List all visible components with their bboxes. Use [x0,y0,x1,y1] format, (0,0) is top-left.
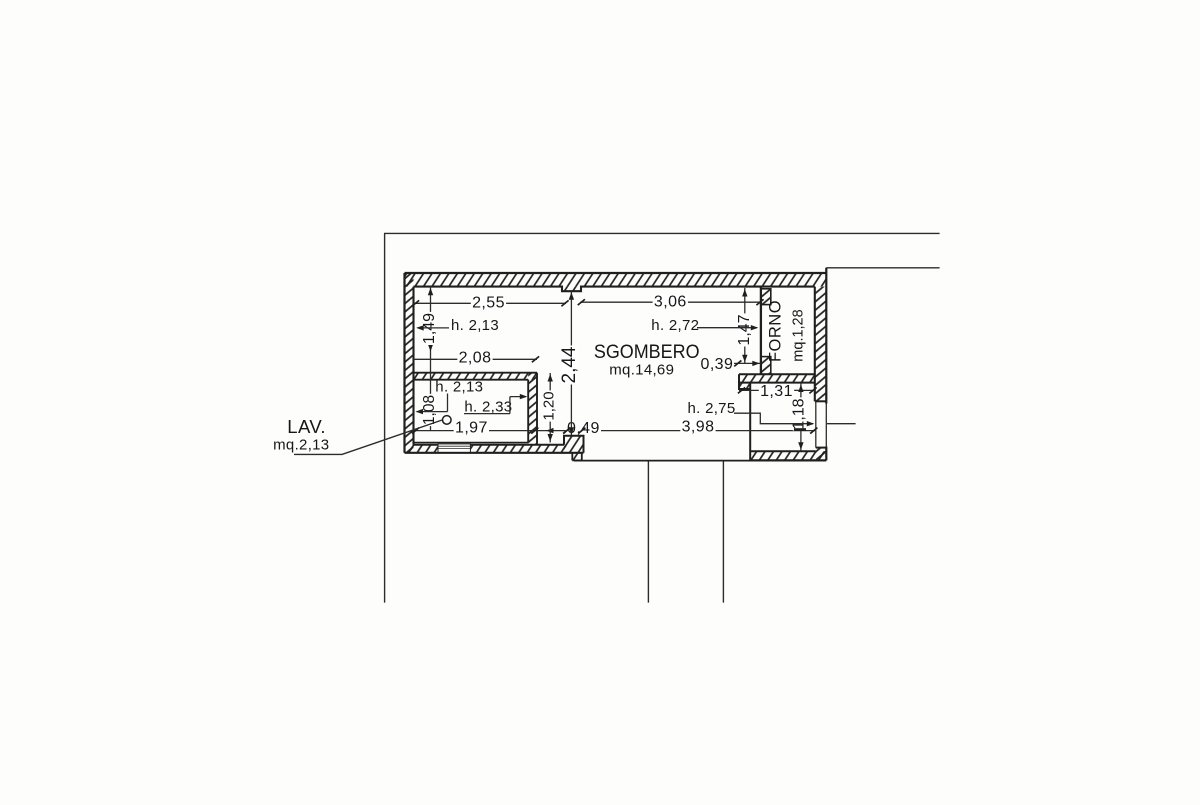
svg-text:2,55: 2,55 [472,295,505,312]
svg-text:h. 2,72: h. 2,72 [651,317,699,334]
svg-text:mq.14,69: mq.14,69 [609,362,674,379]
svg-text:FORNO: FORNO [767,300,785,362]
svg-text:1,18: 1,18 [791,398,808,429]
svg-text:2,44: 2,44 [559,346,580,383]
svg-text:2,08: 2,08 [459,350,492,367]
svg-text:3,06: 3,06 [654,294,687,311]
svg-text:h. 2,33: h. 2,33 [464,398,512,415]
svg-text:1,97: 1,97 [455,420,488,437]
svg-text:1,31: 1,31 [760,383,793,400]
svg-text:SGOMBERO: SGOMBERO [594,342,700,363]
svg-text:mq.2,13: mq.2,13 [273,437,329,454]
svg-text:0,39: 0,39 [701,356,734,373]
svg-text:1,47: 1,47 [736,314,753,345]
svg-text:h. 2,75: h. 2,75 [688,400,736,417]
svg-text:LAV.: LAV. [287,416,326,437]
svg-text:mq.1,28: mq.1,28 [791,309,807,361]
svg-text:1,20: 1,20 [540,391,557,420]
svg-text:h. 2,13: h. 2,13 [451,317,499,334]
svg-text:h. 2,13: h. 2,13 [435,379,483,396]
svg-text:1,08: 1,08 [421,395,438,425]
svg-text:3,98: 3,98 [682,419,715,436]
